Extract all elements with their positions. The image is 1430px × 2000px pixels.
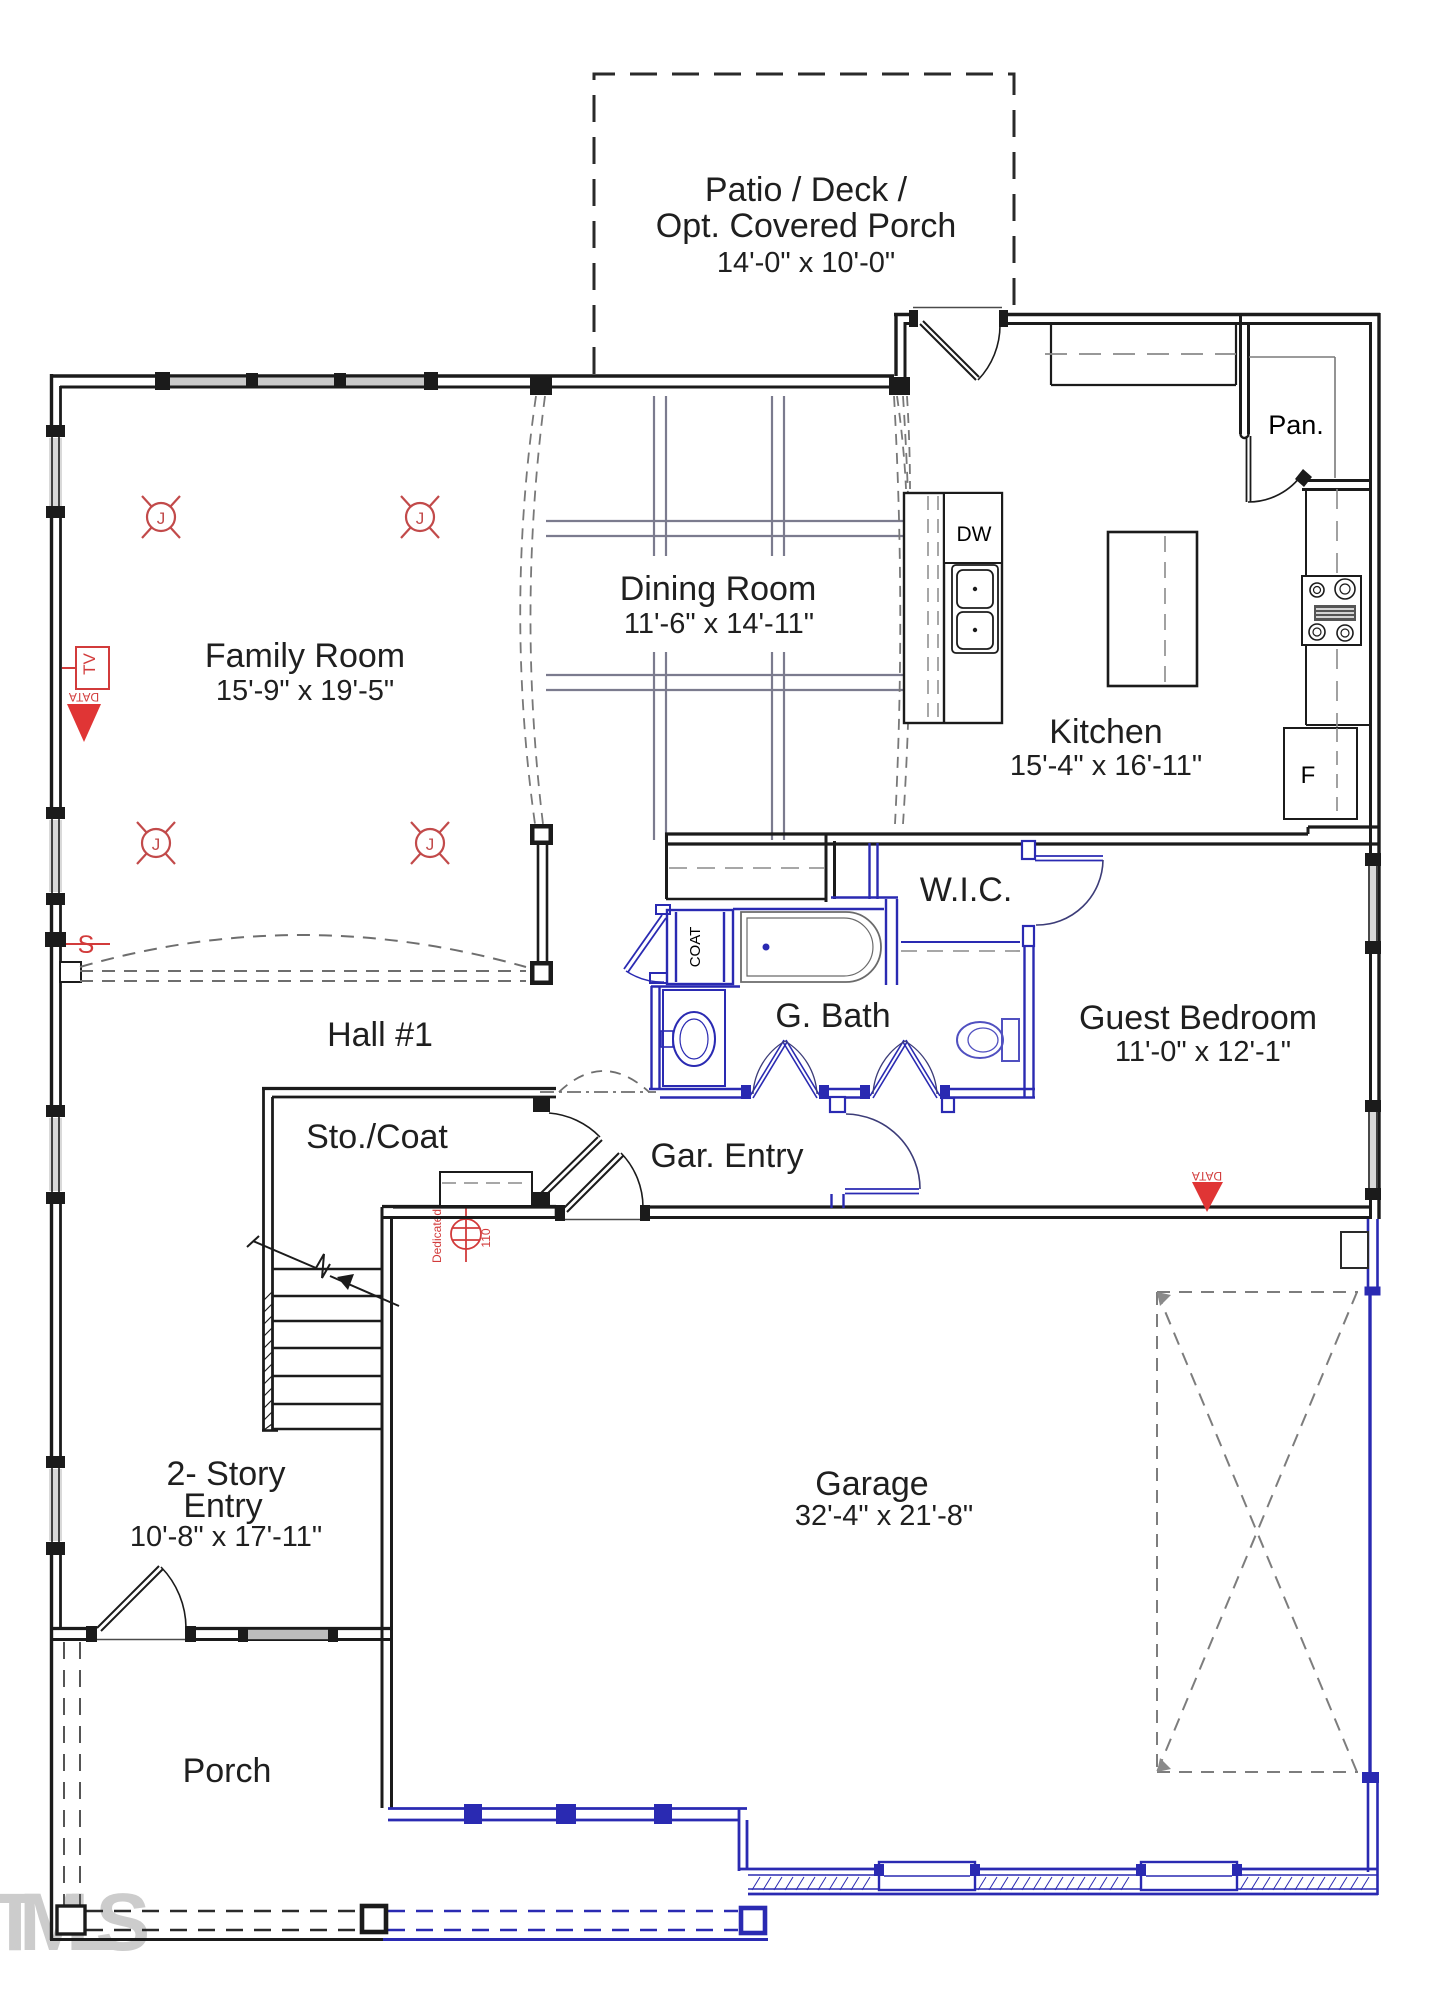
svg-text:J: J xyxy=(416,509,425,528)
svg-text:15'-4" x 16'-11": 15'-4" x 16'-11" xyxy=(1010,750,1202,782)
svg-text:Opt. Covered Porch: Opt. Covered Porch xyxy=(656,207,956,245)
svg-text:COAT: COAT xyxy=(687,927,704,968)
svg-text:Family Room: Family Room xyxy=(205,637,405,675)
svg-text:Sto./Coat: Sto./Coat xyxy=(306,1118,448,1156)
svg-text:11'-0" x 12'-1": 11'-0" x 12'-1" xyxy=(1115,1036,1291,1068)
svg-text:DW: DW xyxy=(957,523,992,546)
svg-text:32'-4" x 21'-8": 32'-4" x 21'-8" xyxy=(795,1500,973,1532)
svg-text:TV: TV xyxy=(80,652,99,674)
svg-text:Garage: Garage xyxy=(815,1465,928,1503)
svg-text:S: S xyxy=(78,931,95,959)
svg-text:Entry: Entry xyxy=(183,1487,262,1525)
svg-text:14'-0" x 10'-0": 14'-0" x 10'-0" xyxy=(717,247,895,279)
svg-text:J: J xyxy=(426,835,435,854)
svg-text:W.I.C.: W.I.C. xyxy=(920,871,1013,909)
svg-text:Dining Room: Dining Room xyxy=(620,570,817,608)
svg-text:11'-6" x 14'-11": 11'-6" x 14'-11" xyxy=(624,608,814,640)
svg-text:Pan.: Pan. xyxy=(1268,410,1324,440)
svg-text:10'-8" x 17'-11": 10'-8" x 17'-11" xyxy=(130,1521,322,1553)
svg-text:F: F xyxy=(1301,762,1316,789)
svg-text:J: J xyxy=(157,509,166,528)
svg-text:Patio / Deck /: Patio / Deck / xyxy=(705,171,908,209)
svg-text:Gar. Entry: Gar. Entry xyxy=(650,1137,803,1175)
svg-text:DATA: DATA xyxy=(1192,1169,1222,1183)
svg-text:J: J xyxy=(152,835,161,854)
svg-text:Kitchen: Kitchen xyxy=(1049,713,1162,751)
svg-text:DATA: DATA xyxy=(69,690,99,704)
svg-text:110: 110 xyxy=(479,1228,493,1247)
svg-text:Hall #1: Hall #1 xyxy=(327,1016,433,1054)
svg-text:15'-9" x 19'-5": 15'-9" x 19'-5" xyxy=(216,675,394,707)
svg-text:Guest Bedroom: Guest Bedroom xyxy=(1079,999,1317,1037)
svg-text:G. Bath: G. Bath xyxy=(775,997,890,1035)
svg-text:Porch: Porch xyxy=(183,1752,272,1790)
